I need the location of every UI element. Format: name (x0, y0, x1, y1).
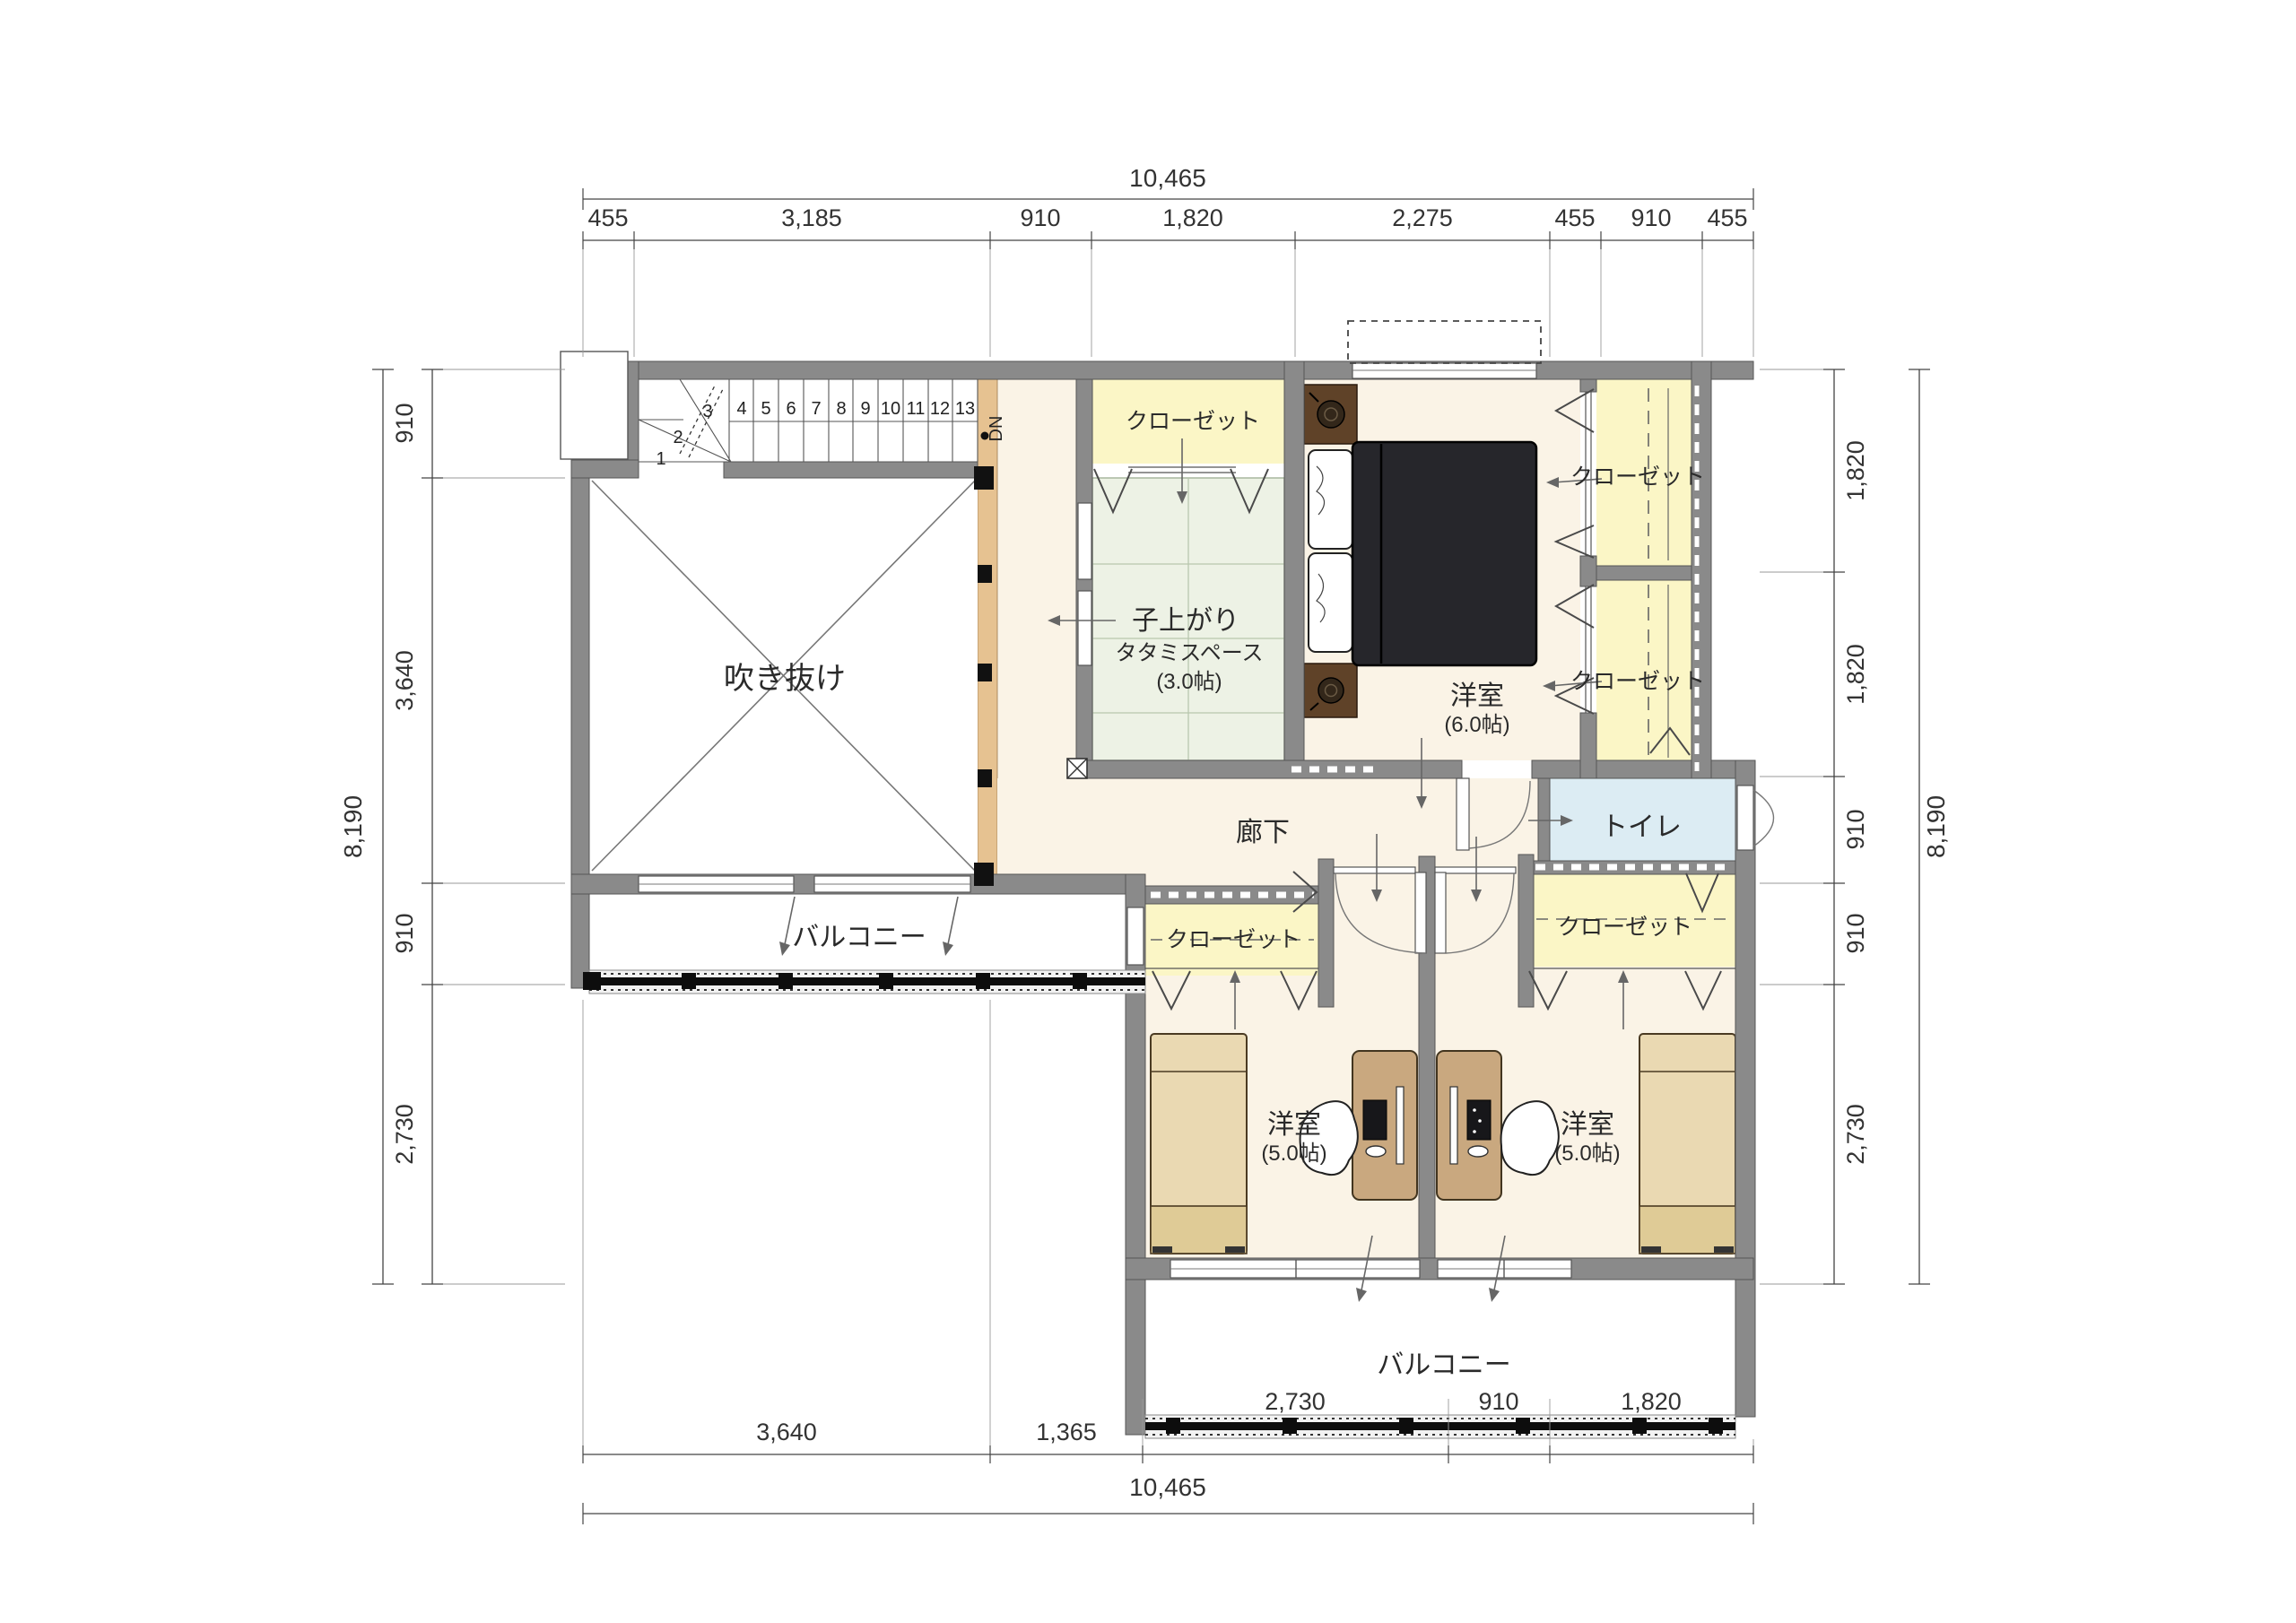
dim-top-extensions (583, 249, 1753, 357)
wall-closet-stub3 (1580, 713, 1596, 778)
post-box-x (1067, 759, 1087, 778)
kid-right-size-label: (5.0帖) (1554, 1141, 1620, 1166)
master-roof-dashed (1348, 321, 1541, 363)
pillow-2 (1309, 553, 1352, 652)
floor-plan-page: 1 2 3 4 5 6 7 8 9 10 11 12 13 DN (0, 0, 2296, 1623)
kid-left-door-header (1334, 867, 1415, 873)
toilet-door-leaf (1737, 785, 1753, 850)
dim-bottom-seg-3: 910 (1478, 1388, 1518, 1415)
wall-closet-east (1692, 361, 1711, 778)
dim-bottom-seg-1: 1,365 (1036, 1419, 1097, 1445)
kid-right-bed-leg2 (1714, 1246, 1734, 1253)
post-void-e2 (978, 664, 992, 681)
kid-left-bed-leg1 (1152, 1246, 1172, 1253)
step-3: 3 (702, 402, 712, 421)
tatami-label-2: タタミスペース (1115, 641, 1263, 665)
kid-left-mouse-icon (1366, 1146, 1386, 1157)
dim-right-seg-4: 2,730 (1842, 1104, 1869, 1165)
wall-toilet-west (1538, 778, 1550, 874)
stairs-floor (639, 379, 978, 462)
dim-right-seg-1: 1,820 (1842, 644, 1869, 705)
kid-left-bed-leg2 (1225, 1246, 1245, 1253)
dn-label: DN (987, 416, 1006, 442)
step-12: 12 (930, 399, 950, 419)
tatami-label-1: 子上がり (1132, 606, 1239, 636)
tatami-window-2 (1078, 591, 1091, 665)
dim-top-seg-2: 910 (1020, 204, 1060, 231)
monitor-speck3 (1473, 1130, 1476, 1133)
kid-right-desk-panel (1450, 1087, 1457, 1164)
dim-right-seg-2: 910 (1842, 809, 1869, 849)
master-size-label: (6.0帖) (1444, 713, 1509, 737)
dimension-left: 8,190 910 3,640 910 2,730 (339, 369, 565, 1284)
dim-left-extensions (443, 369, 565, 1284)
kid-right-door-header (1435, 867, 1516, 873)
dim-top-seg-7: 455 (1707, 204, 1747, 231)
wall-closet-stub2 (1580, 556, 1596, 586)
dim-left-seg-1: 3,640 (391, 650, 418, 711)
dim-right-seg-0: 1,820 (1842, 440, 1869, 501)
step-2: 2 (673, 428, 683, 447)
dim-bottom-total: 10,465 (1129, 1473, 1206, 1501)
dim-bottom-seg-2: 2,730 (1265, 1388, 1326, 1415)
kid-left-west-window (1127, 907, 1144, 965)
step-4: 4 (736, 399, 746, 419)
closet-kidleft-label: クローゼット (1166, 927, 1300, 952)
dim-left-seg-0: 910 (391, 403, 418, 443)
void-label: 吹き抜け (724, 662, 846, 696)
step-8: 8 (836, 399, 846, 419)
step-11: 11 (907, 399, 926, 419)
wall-top (621, 361, 1753, 379)
dimension-top: 10,465 455 3,185 910 1,820 2,275 455 910… (583, 164, 1753, 357)
toilet-label: トイレ (1601, 812, 1682, 842)
dim-top-seg-5: 455 (1554, 204, 1595, 231)
balcony-left-railing (583, 970, 1145, 994)
balcony-bottom-railing (1145, 1415, 1735, 1438)
dim-bottom-seg-0: 3,640 (756, 1419, 817, 1445)
dim-right-total: 8,190 (1922, 795, 1950, 858)
post-void-se (974, 863, 994, 886)
hall-edge-strip (978, 379, 997, 894)
dim-bottom-seg-4: 1,820 (1621, 1388, 1682, 1415)
dim-right-extensions (1760, 369, 1823, 1284)
step-7: 7 (811, 399, 821, 419)
dim-top-seg-6: 910 (1631, 204, 1671, 231)
balcony-bottom-label: バルコニー (1377, 1350, 1510, 1380)
kid-left-monitor-icon (1363, 1100, 1387, 1140)
wall-closet-divider (1596, 566, 1692, 580)
hall-label: 廊下 (1236, 818, 1290, 847)
wall-tatami-east (1284, 361, 1304, 778)
dim-left-seg-2: 910 (391, 913, 418, 953)
toilet-door-arc (1753, 790, 1774, 846)
dim-top-seg-3: 1,820 (1162, 204, 1223, 231)
closet-r2-label: クローゼット (1570, 669, 1705, 694)
bay-box (561, 352, 628, 459)
dim-top-seg-0: 455 (587, 204, 628, 231)
wall-jog (571, 460, 639, 478)
wall-stair-south (724, 462, 978, 478)
dim-top-total: 10,465 (1129, 164, 1206, 192)
kid-left-desk-panel (1396, 1087, 1404, 1164)
closet-top-label: クローゼット (1126, 409, 1260, 434)
dimension-right: 1,820 1,820 910 910 2,730 8,190 (1760, 369, 1950, 1284)
kid-right-door-leaf (1435, 872, 1446, 953)
wall-hall-north-west (1076, 760, 1462, 778)
dim-top-seg-1: 3,185 (781, 204, 842, 231)
kid-left-label: 洋室 (1267, 1110, 1321, 1140)
tatami-label-3: (3.0帖) (1156, 670, 1222, 694)
wall-void-west (571, 460, 589, 988)
post-void-e1 (978, 565, 992, 583)
wall-hall-north-east (1532, 760, 1753, 778)
kid-left-door-leaf (1415, 872, 1426, 953)
tatami-window-1 (1078, 503, 1091, 579)
post-void-ne (974, 466, 994, 490)
dim-left-seg-3: 2,730 (391, 1104, 418, 1165)
closet-r1-label: クローゼット (1570, 464, 1705, 490)
post-void-e3 (978, 769, 992, 787)
step-1: 1 (656, 449, 665, 469)
step-6: 6 (786, 399, 796, 419)
master-door-leaf (1457, 778, 1469, 850)
wall-closet-kidright-west (1518, 855, 1534, 1007)
step-13: 13 (955, 399, 975, 419)
pillow-1 (1309, 450, 1352, 549)
wall-east (1735, 760, 1755, 1417)
monitor-speck1 (1473, 1108, 1476, 1112)
master-label: 洋室 (1450, 681, 1504, 711)
monitor-speck2 (1478, 1119, 1482, 1123)
closet-kidright-label: クローゼット (1558, 915, 1692, 940)
floor-plan-drawing: 1 2 3 4 5 6 7 8 9 10 11 12 13 DN (0, 0, 2296, 1623)
dim-right-seg-3: 910 (1842, 913, 1869, 953)
lamp-bottom-icon (1318, 678, 1344, 703)
dim-left-total: 8,190 (339, 795, 367, 858)
kid-right-mouse-icon (1468, 1146, 1488, 1157)
step-9: 9 (860, 399, 870, 419)
kid-right-label: 洋室 (1561, 1110, 1614, 1140)
kid-right-bed-leg1 (1641, 1246, 1661, 1253)
dim-top-seg-4: 2,275 (1392, 204, 1453, 231)
balcony-left-label: バルコニー (792, 923, 926, 952)
step-5: 5 (761, 399, 770, 419)
kid-left-size-label: (5.0帖) (1261, 1141, 1326, 1166)
step-10: 10 (881, 399, 900, 419)
wall-closet-kidleft-east (1318, 859, 1334, 1007)
lamp-top-icon (1318, 401, 1344, 428)
